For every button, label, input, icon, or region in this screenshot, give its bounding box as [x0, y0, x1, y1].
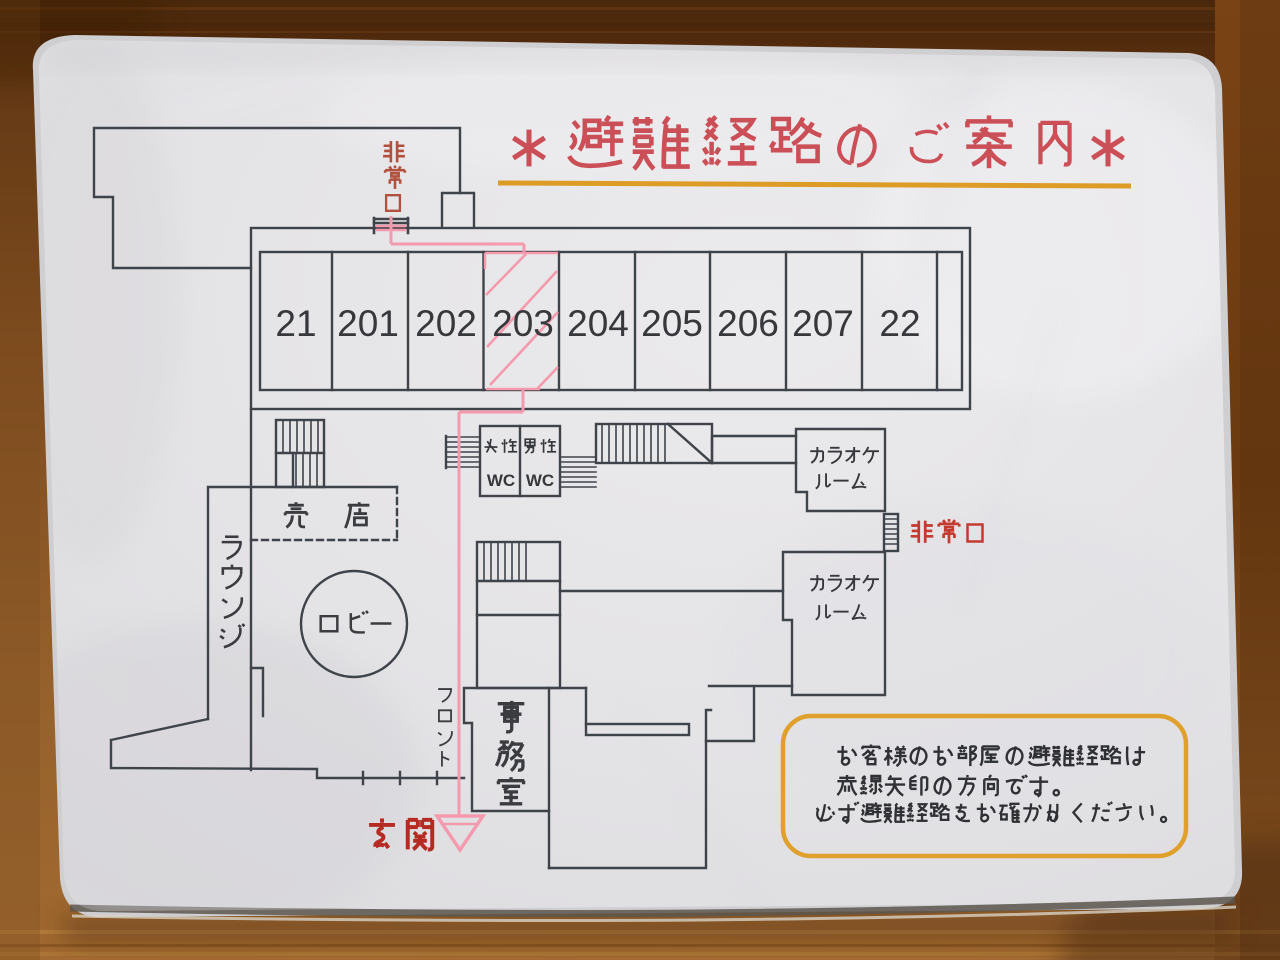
- svg-text:203: 203: [492, 303, 554, 344]
- svg-text:205: 205: [641, 303, 703, 344]
- svg-text:21: 21: [275, 303, 316, 344]
- svg-text:WC: WC: [487, 471, 515, 490]
- svg-text:206: 206: [717, 303, 779, 344]
- svg-text:207: 207: [792, 303, 854, 344]
- svg-text:WC: WC: [526, 471, 554, 490]
- svg-text:204: 204: [567, 303, 629, 344]
- svg-text:201: 201: [337, 303, 399, 344]
- svg-text:22: 22: [879, 303, 920, 344]
- svg-text:202: 202: [415, 303, 477, 344]
